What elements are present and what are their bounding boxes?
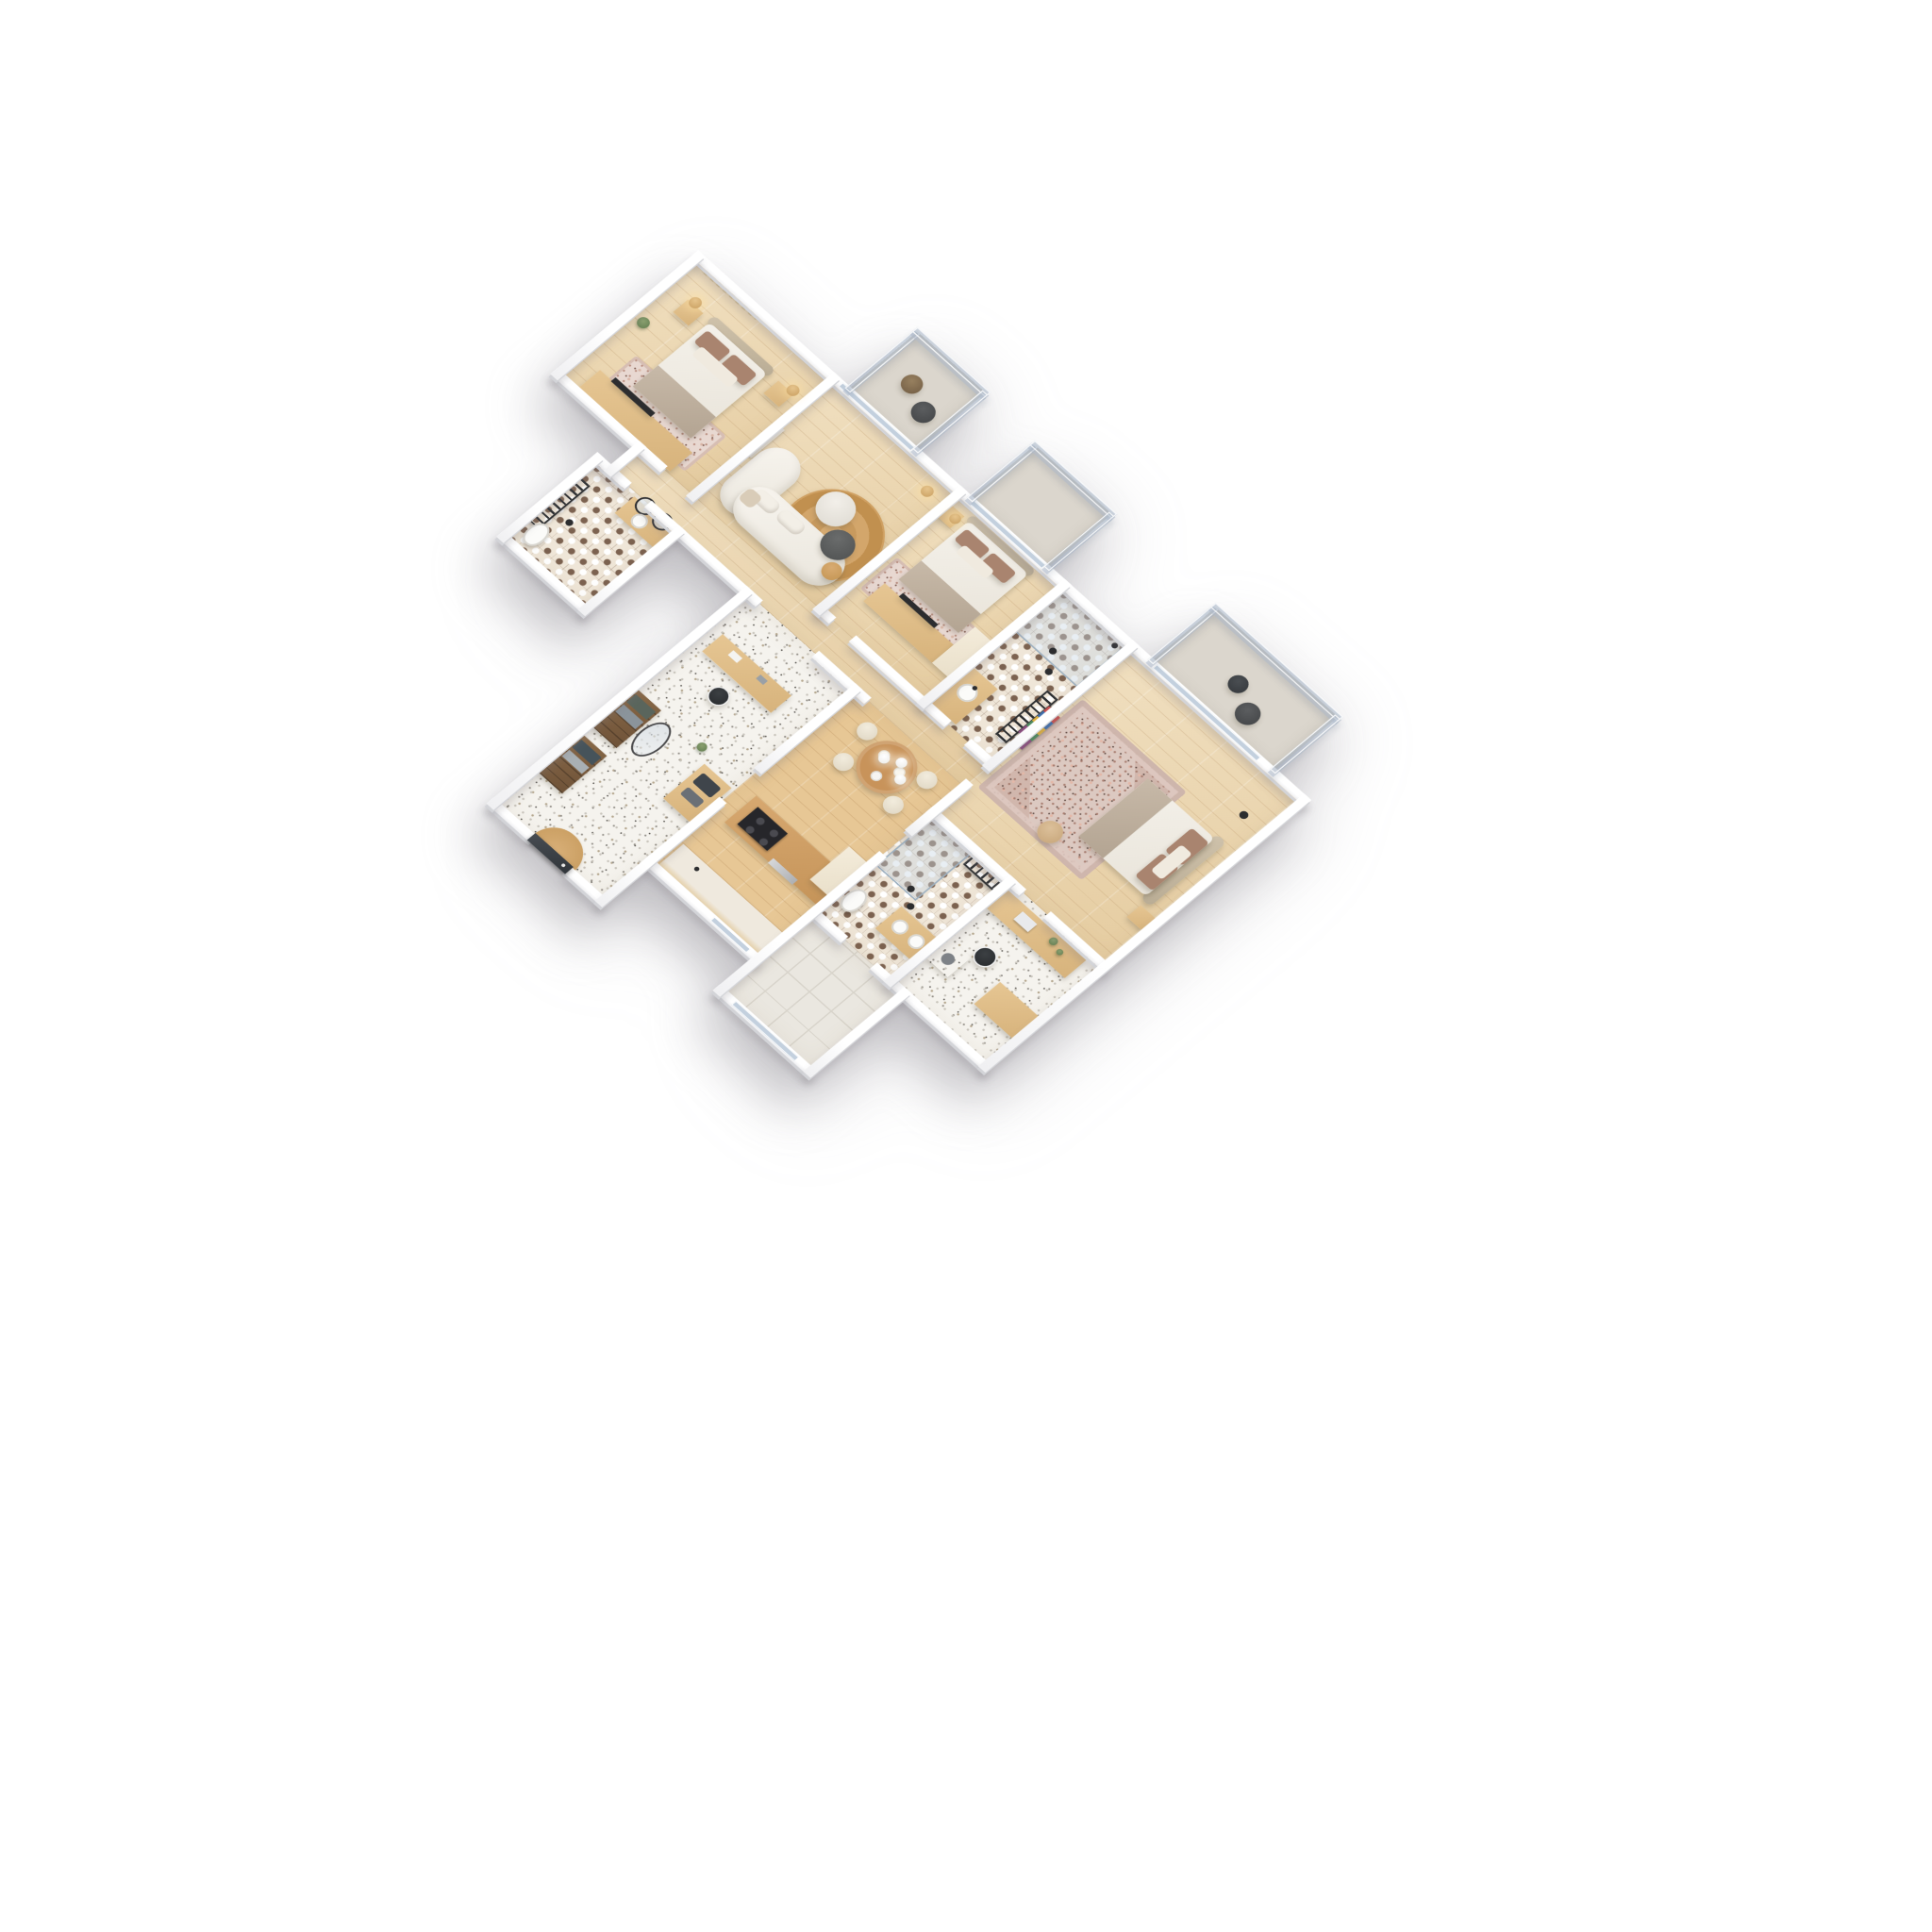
canvas-background [0, 0, 1932, 1932]
apartment-shadow-wrapper [0, 0, 1932, 1932]
